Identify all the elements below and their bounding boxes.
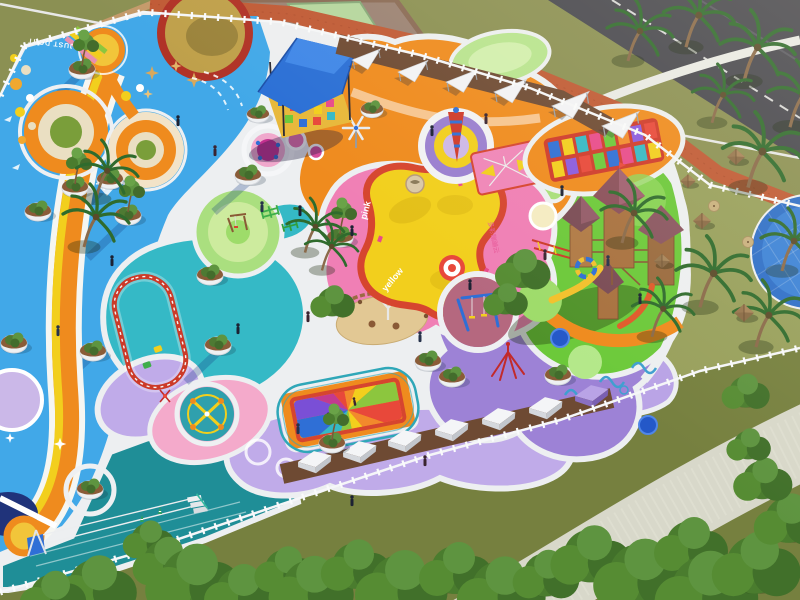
person: [110, 255, 113, 266]
person: [260, 201, 263, 212]
pale-circle: [530, 203, 556, 229]
person: [236, 323, 239, 334]
person: [306, 311, 309, 322]
person: [468, 279, 471, 290]
person: [298, 205, 301, 216]
person: [350, 495, 353, 506]
person: [350, 225, 353, 236]
person: [296, 423, 299, 434]
person: [56, 325, 59, 336]
person: [418, 331, 421, 342]
person: [484, 113, 487, 124]
person: [176, 115, 179, 126]
person: [543, 249, 546, 260]
person: [213, 145, 216, 156]
mini-trampoline: [551, 329, 569, 347]
mini-trampoline: [639, 416, 657, 434]
parasol: [709, 201, 720, 212]
person: [606, 255, 609, 266]
playground-aerial-render: JUST DO IT: [0, 0, 800, 600]
merry-go-round: [177, 384, 237, 444]
person: [638, 293, 641, 304]
person: [560, 185, 563, 196]
person: [423, 455, 426, 466]
scene-canvas: JUST DO IT: [0, 0, 800, 600]
zone-pale-green-circle: [194, 188, 282, 276]
person: [430, 125, 433, 136]
lavender-circle: [0, 370, 42, 430]
parasol: [743, 237, 754, 248]
